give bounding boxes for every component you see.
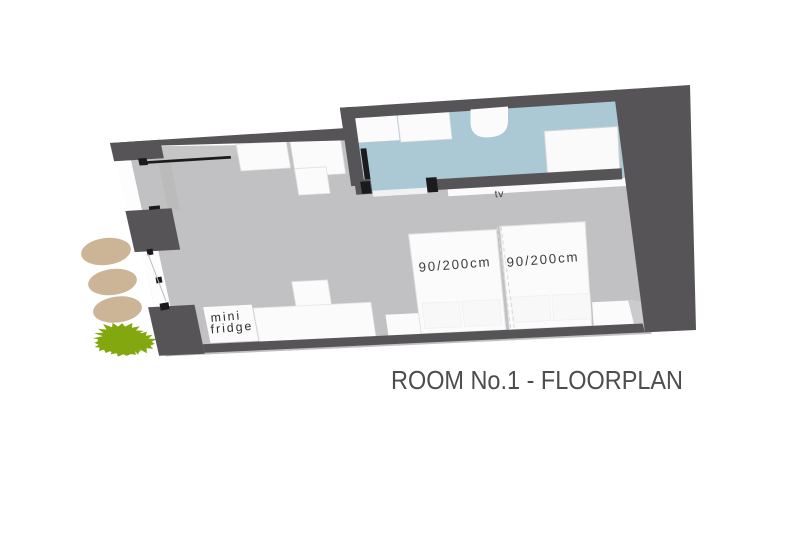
svg-text:tv: tv (494, 188, 504, 201)
svg-text:ROOM No.1 - FLOORPLAN: ROOM No.1 - FLOORPLAN (391, 365, 683, 395)
